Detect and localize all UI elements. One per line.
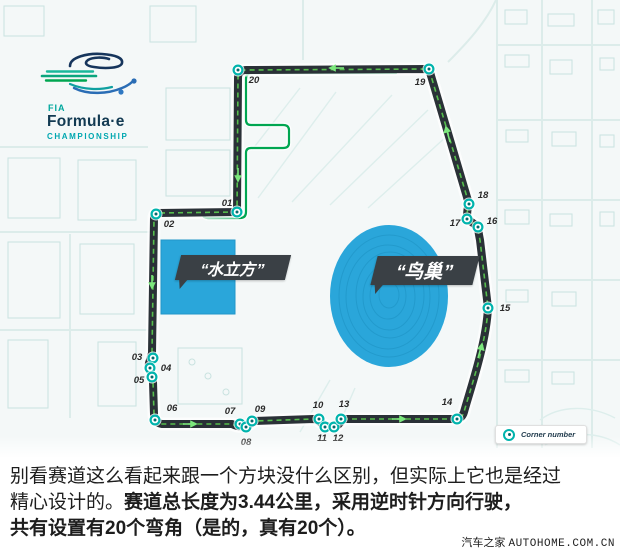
formula-e-logo: FIA Formula·e CHAMPIONSHIP: [36, 50, 144, 140]
legend-corner-number: Corner number: [495, 425, 587, 444]
corner-label-03: 03: [132, 352, 143, 363]
caption-line-1: 别看赛道这么看起来跟一个方块没什么区别，但实际上它也是经过: [10, 464, 608, 490]
corner-label-18: 18: [478, 190, 489, 201]
birds-nest-label: “鸟巢”: [393, 257, 457, 284]
formula-e-swoosh-icon: [36, 50, 144, 98]
watermark-cn: 汽车之家: [461, 537, 505, 549]
corner-label-07: 07: [225, 406, 236, 417]
logo-name-text: Formula·e: [47, 113, 144, 131]
corner-marker-icon: [503, 429, 515, 441]
corner-label-17: 17: [450, 218, 461, 229]
corner-label-20: 20: [248, 75, 260, 86]
corner-label-02: 02: [164, 219, 175, 230]
corner-label-04: 04: [161, 363, 172, 374]
corner-label-01: 01: [222, 198, 233, 209]
corner-label-09: 09: [255, 404, 266, 415]
corner-label-05: 05: [134, 375, 145, 386]
logo-championship-text: CHAMPIONSHIP: [47, 132, 144, 141]
logo-fia-text: FIA: [48, 103, 144, 113]
birds-nest-building: [330, 225, 448, 367]
caption-line-2: 精心设计的。赛道总长度为3.44公里，采用逆时针方向行驶，: [10, 490, 608, 516]
corner-label-19: 19: [415, 77, 426, 88]
caption: 别看赛道这么看起来跟一个方块没什么区别，但实际上它也是经过 精心设计的。赛道总长…: [0, 458, 620, 542]
corner-label-14: 14: [442, 397, 453, 408]
corner-label-16: 16: [487, 216, 498, 227]
water-cube-banner: “水立方”: [175, 255, 291, 280]
corner-label-15: 15: [500, 303, 511, 314]
track-map: 0102030405060708091011121314151617181920…: [0, 0, 620, 458]
corner-label-10: 10: [313, 400, 324, 411]
infographic: 0102030405060708091011121314151617181920…: [0, 0, 620, 553]
legend-label: Corner number: [521, 430, 575, 439]
corner-label-06: 06: [167, 403, 178, 414]
watermark: 汽车之家 AUTOHOME.COM.CN: [461, 534, 615, 550]
water-cube-label: “水立方”: [198, 256, 268, 280]
birds-nest-banner: “鸟巢”: [370, 256, 479, 285]
watermark-en: AUTOHOME.COM.CN: [508, 538, 615, 550]
corner-label-13: 13: [339, 399, 350, 410]
